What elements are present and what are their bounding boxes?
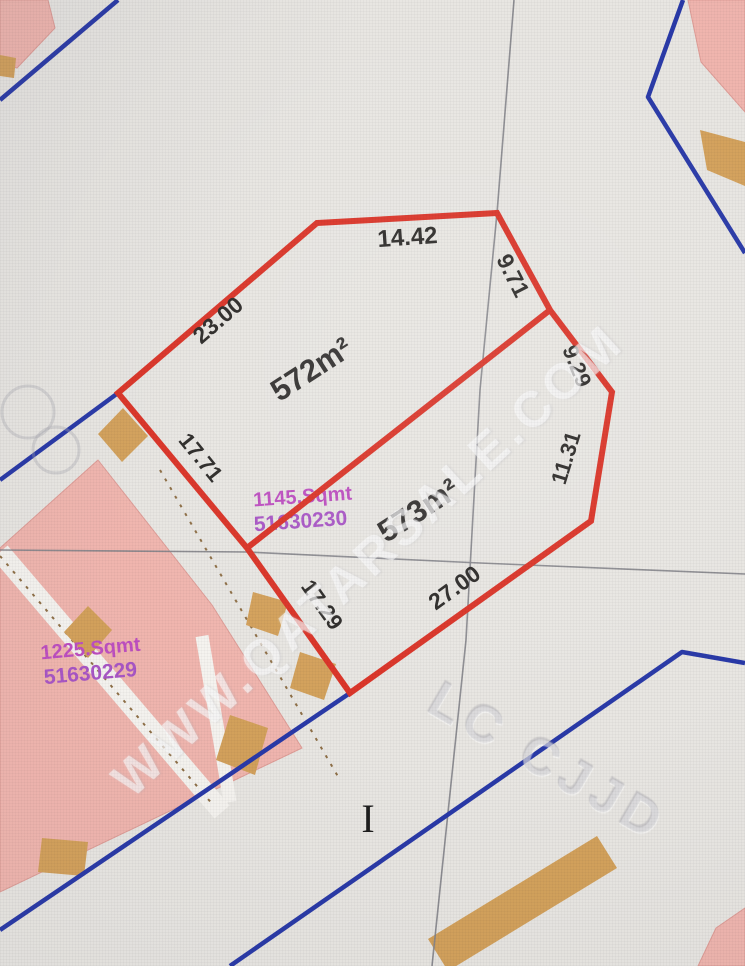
text-cursor-ibeam: I [361,796,374,841]
dimension-label-top: 14.42 [377,222,439,253]
tan-block [38,838,88,876]
cadastral-map-screenshot: 1145.Sqmt 51630230 1225.Sqmt 51630229 14… [0,0,745,966]
tan-block [0,55,16,78]
map-svg: 1145.Sqmt 51630230 1225.Sqmt 51630229 14… [0,0,745,966]
